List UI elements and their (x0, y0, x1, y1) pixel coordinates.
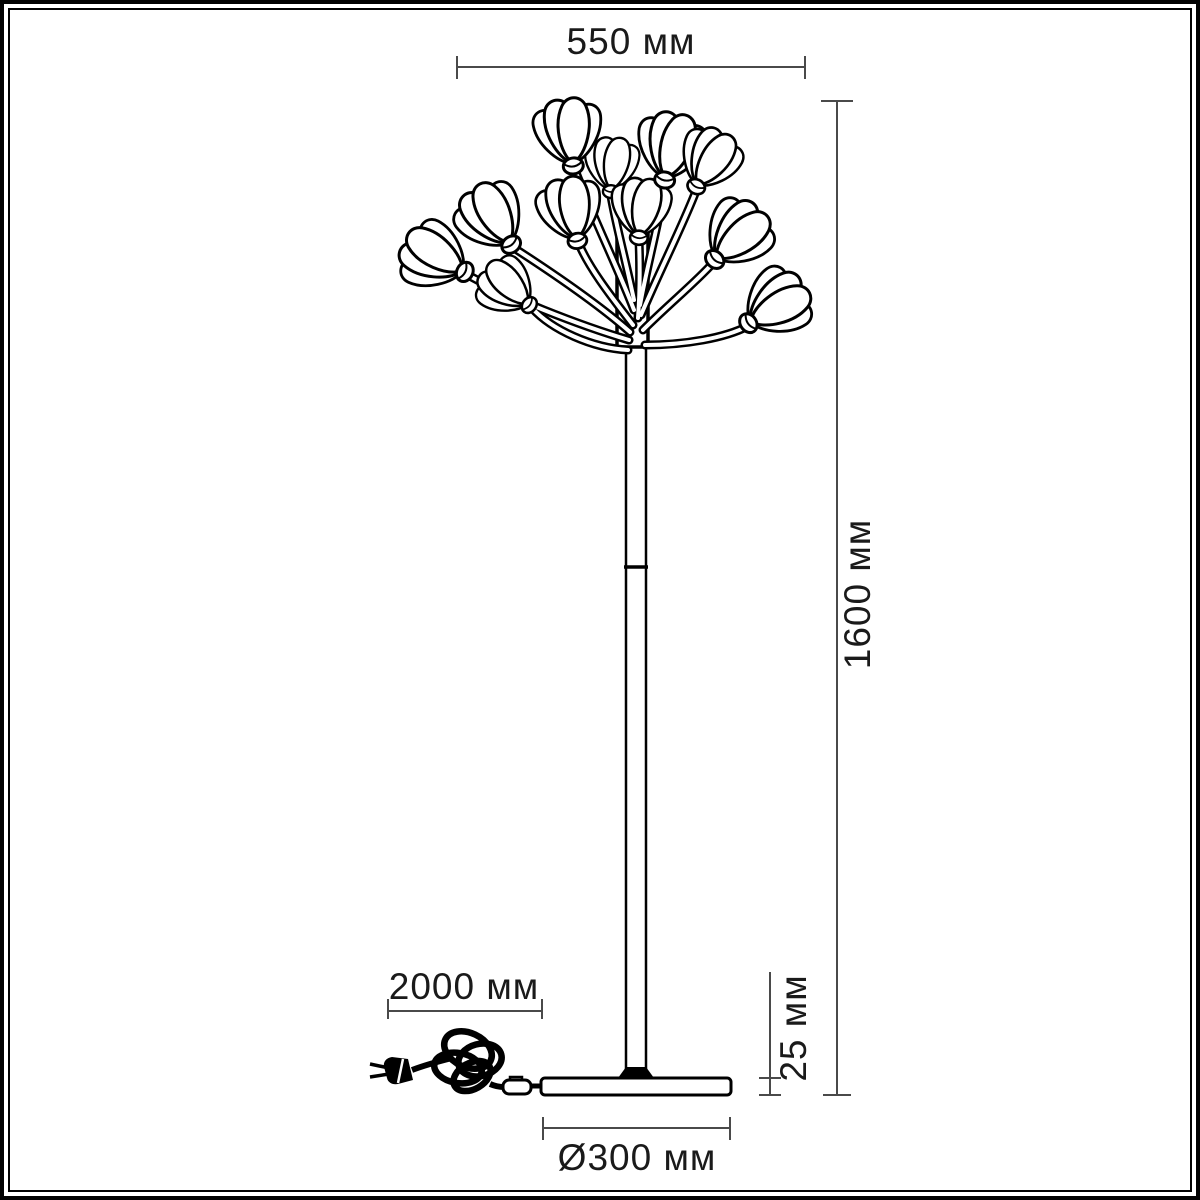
pole-collar (618, 1067, 654, 1078)
label-base-diameter: Ø300 мм (558, 1137, 717, 1179)
inline-switch (503, 1077, 531, 1094)
flower-cluster (384, 91, 829, 361)
label-base-height: 25 мм (773, 974, 815, 1081)
label-lamp-height: 1600 мм (837, 519, 879, 669)
base-plate (541, 1067, 731, 1095)
lamp-artwork (370, 91, 829, 1097)
diagram-stage: 550 мм 1600 мм 2000 мм 25 мм Ø300 мм (0, 0, 1200, 1200)
plug-icon (370, 1057, 413, 1084)
pole (624, 340, 648, 1074)
lamp-dimension-drawing (0, 0, 1200, 1200)
label-shade-spread: 550 мм (567, 21, 696, 63)
power-cord (370, 1024, 541, 1097)
label-cord-length: 2000 мм (389, 966, 539, 1008)
